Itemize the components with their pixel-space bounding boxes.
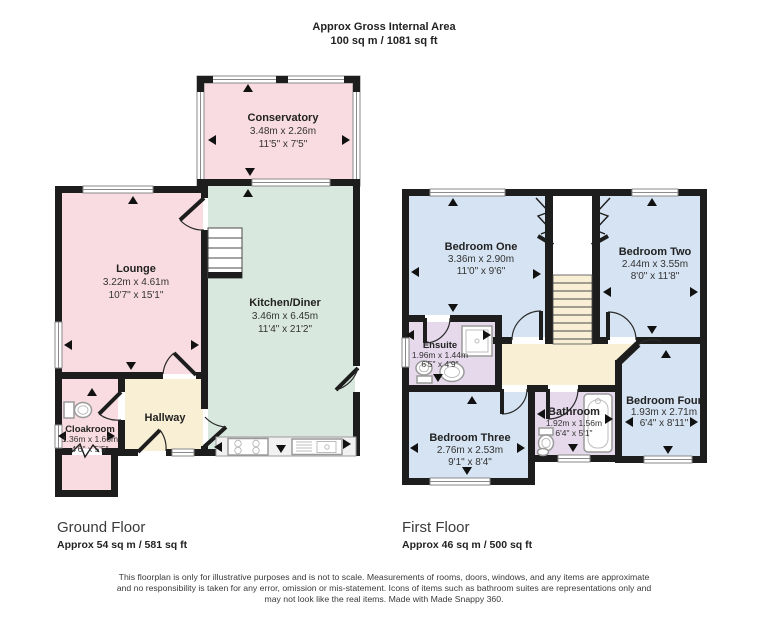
room-dim-imperial: 6'4" x 8'11" (640, 418, 689, 429)
room-dim-metric: 3.48m x 2.26m (250, 126, 316, 137)
stairs-icon (553, 275, 592, 344)
room-name: Bedroom Three (429, 432, 510, 444)
ground-floor-label: Ground Floor Approx 54 sq m / 581 sq ft (57, 519, 187, 551)
window-icon (402, 338, 409, 367)
room-dim-imperial: 8'0" x 11'8" (631, 271, 680, 282)
room-dim-metric: 2.76m x 2.53m (437, 445, 503, 456)
room-dim-imperial: 10'7" x 15'1" (109, 290, 164, 301)
porch-room (62, 455, 111, 491)
landing-room (500, 344, 618, 385)
stairs-icon (208, 228, 242, 278)
kitchen-counter (216, 437, 356, 456)
room-dim-imperial: 9'1" x 8'4" (448, 457, 492, 468)
floor-area: Approx 54 sq m / 581 sq ft (57, 539, 187, 551)
window-icon (632, 189, 678, 196)
room-name: Bedroom Four (626, 395, 702, 407)
room-name: Bedroom Two (619, 246, 692, 258)
window-icon (252, 179, 330, 186)
first-floor-plan: Bedroom One 3.36m x 2.90m 11'0" x 9'6" B… (402, 189, 707, 485)
room-name: Bedroom One (445, 241, 518, 253)
floor-title: Ground Floor (57, 519, 187, 536)
ground-floor-plan: Conservatory 3.48m x 2.26m 11'5" x 7'5" … (55, 76, 360, 497)
window-icon (430, 478, 490, 485)
room-dim-metric: 1.93m x 2.71m (631, 407, 697, 418)
first-floor-label: First Floor Approx 46 sq m / 500 sq ft (402, 519, 532, 551)
room-dim-imperial: 6'4" x 5'1" (555, 428, 592, 438)
disclaimer-line3: may not look like the real items. Made w… (0, 594, 768, 605)
window-icon (172, 449, 194, 456)
room-name: Lounge (116, 263, 156, 275)
room-dim-imperial: 6'5" x 4'9" (421, 359, 458, 369)
sink-icon (538, 449, 549, 456)
room-name: Kitchen/Diner (249, 297, 321, 309)
disclaimer-text: This floorplan is only for illustrative … (0, 572, 768, 605)
room-dim-imperial: 11'4" x 21'2" (258, 324, 313, 335)
window-icon (83, 186, 153, 193)
stove-icon (228, 439, 268, 456)
disclaimer-line2: and no responsibility is taken for any e… (0, 583, 768, 594)
toilet-icon (64, 402, 92, 418)
room-dim-imperial: 11'5" x 7'5" (259, 139, 308, 150)
room-dim-metric: 1.92m x 1.56m (546, 418, 602, 428)
window-icon (55, 322, 62, 368)
room-name: Conservatory (248, 112, 320, 124)
floor-area: Approx 46 sq m / 500 sq ft (402, 539, 532, 551)
room-dim-metric: 3.22m x 4.61m (103, 277, 169, 288)
room-dim-metric: 3.36m x 2.90m (448, 254, 514, 265)
room-dim-metric: 2.44m x 3.55m (622, 259, 688, 270)
room-dim-metric: 3.46m x 6.45m (252, 311, 318, 322)
kitchen-sink-icon (292, 439, 342, 455)
toilet-icon (539, 428, 554, 451)
disclaimer-line1: This floorplan is only for illustrative … (0, 572, 768, 583)
window-icon (558, 455, 590, 462)
room-dim-imperial: 11'0" x 9'6" (457, 266, 506, 277)
window-icon (430, 189, 505, 196)
window-icon (644, 456, 692, 463)
room-name: Hallway (145, 412, 187, 424)
room-name: Bathroom (548, 406, 600, 418)
room-dim-imperial: 4'6" x 5'5" (71, 444, 108, 454)
floorplan-page: Approx Gross Internal Area 100 sq m / 10… (0, 0, 768, 617)
floor-title: First Floor (402, 519, 532, 536)
room-dim-metric: 1.36m x 1.66m (62, 434, 118, 444)
